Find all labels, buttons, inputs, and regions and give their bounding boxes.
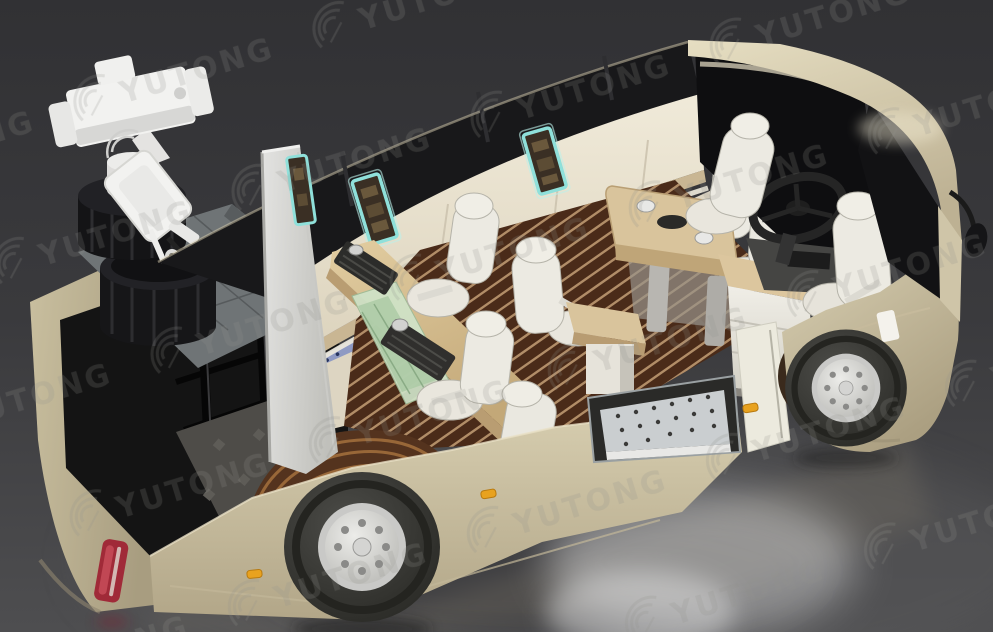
taillight-reflection <box>96 616 128 628</box>
desk-hardware-knob <box>392 319 408 331</box>
desk-hardware-knob <box>349 245 363 255</box>
bus-render-canvas: YUTONG <box>0 0 993 632</box>
instrument-panel <box>787 251 830 270</box>
bus-render-stage: YUTONG <box>0 0 993 632</box>
